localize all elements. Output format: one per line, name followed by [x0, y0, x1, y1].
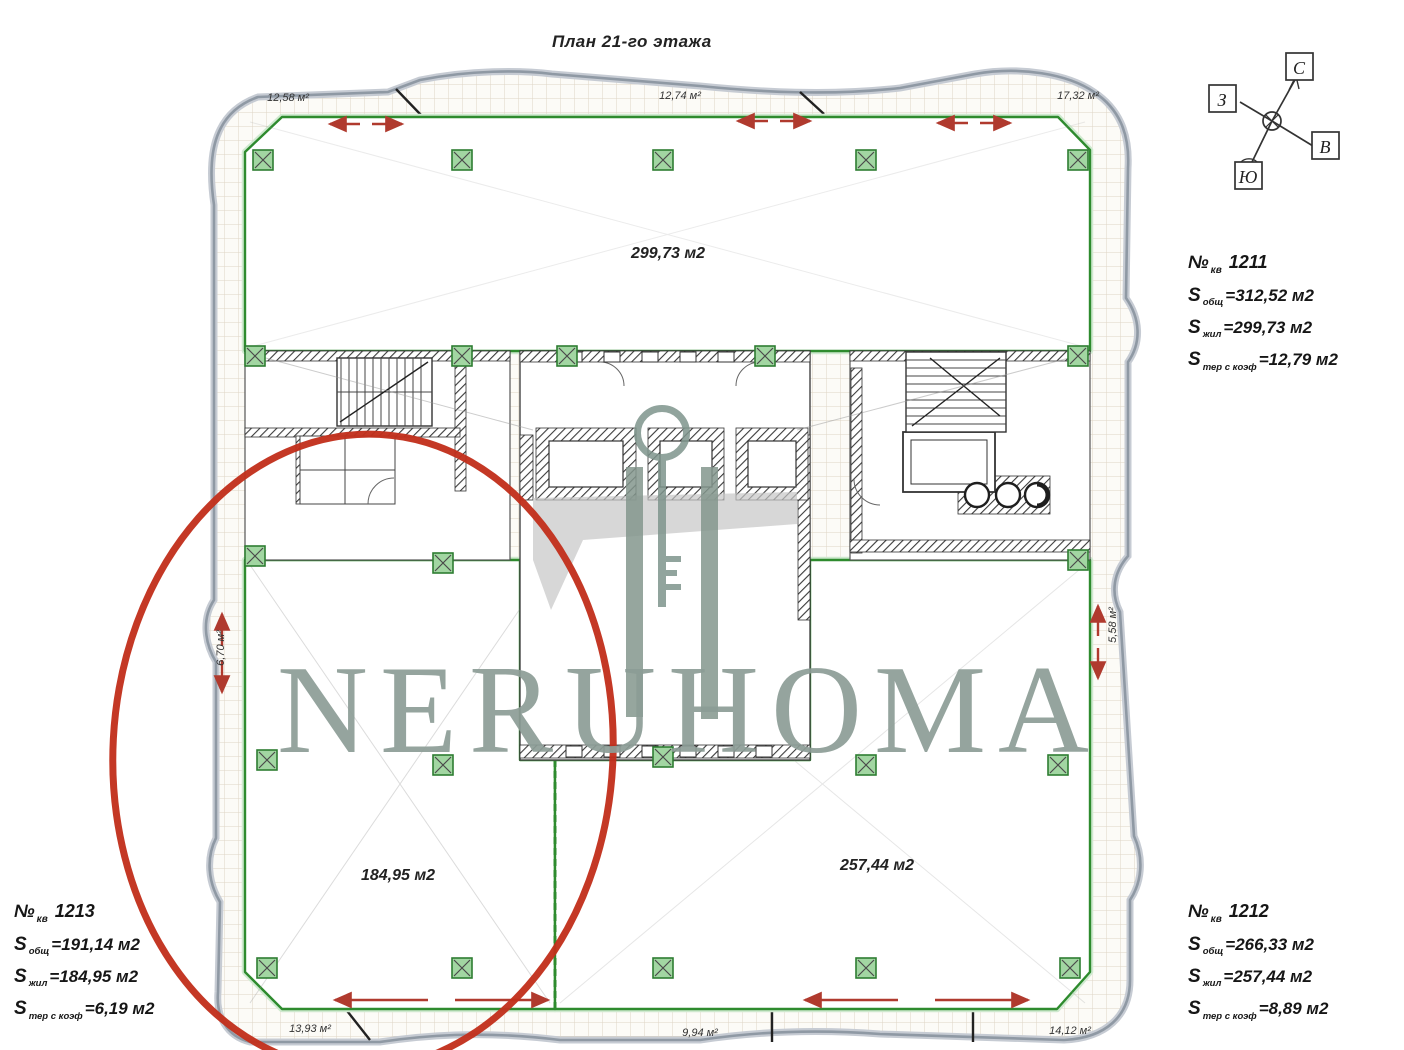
room-area-label-bottom-right: 257,44 м2	[839, 857, 914, 874]
room-area-label-top: 299,73 м2	[630, 245, 705, 262]
watermark-text: NERUHOMA	[277, 641, 1089, 780]
right-stairwell	[906, 352, 1006, 432]
balcony-area-label: 5,58 м²	[1107, 607, 1119, 643]
apartment-area-terrace: Sтер с коэф=8,89 м2	[1188, 996, 1403, 1028]
apartment-area-total: Sобщ=191,14 м2	[14, 932, 229, 964]
apartment-number: №кв 1213	[14, 899, 229, 932]
apartment-number: №кв 1211	[1188, 250, 1403, 283]
apartment-info-1212: №кв 1212 Sобщ=266,33 м2 Sжил=257,44 м2 S…	[1188, 899, 1403, 1029]
apartment-area-total: Sобщ=266,33 м2	[1188, 932, 1403, 964]
apartment-area-terrace: Sтер с коэф=12,79 м2	[1188, 347, 1403, 379]
balcony-area-label: 12,74 м²	[659, 90, 701, 102]
apartment-area-living: Sжил=184,95 м2	[14, 964, 229, 996]
room-area-label-bottom-left: 184,95 м2	[361, 867, 435, 884]
balcony-area-label: 6,70 м²	[215, 630, 227, 666]
apartment-number: №кв 1212	[1188, 899, 1403, 932]
compass-rose: С З В Ю	[1209, 53, 1339, 189]
compass-west-label: З	[1218, 90, 1227, 110]
balcony-area-label: 12,58 м²	[267, 92, 309, 104]
floor-plan-drawing: 299,73 м2 184,95 м2 257,44 м2 12,58 м² 1…	[0, 0, 1404, 1050]
compass-south-label: Ю	[1238, 167, 1258, 187]
balcony-area-label: 14,12 м²	[1049, 1025, 1091, 1037]
compass-north-label: С	[1293, 58, 1306, 78]
elevator-shafts	[549, 441, 796, 487]
apartment-area-total: Sобщ=312,52 м2	[1188, 283, 1403, 315]
apartment-area-terrace: Sтер с коэф=6,19 м2	[14, 996, 229, 1028]
balcony-area-label: 13,93 м²	[289, 1023, 331, 1035]
apartment-info-1211: №кв 1211 Sобщ=312,52 м2 Sжил=299,73 м2 S…	[1188, 250, 1403, 380]
apartment-info-1213: №кв 1213 Sобщ=191,14 м2 Sжил=184,95 м2 S…	[14, 899, 229, 1029]
garbage-chute	[965, 483, 1049, 507]
apartment-area-living: Sжил=299,73 м2	[1188, 315, 1403, 347]
left-stairwell	[337, 358, 432, 426]
floor-plan-page: План 21-го этажа	[0, 0, 1404, 1050]
compass-east-label: В	[1320, 137, 1331, 157]
apartment-area-living: Sжил=257,44 м2	[1188, 964, 1403, 996]
balcony-area-label: 17,32 м²	[1057, 90, 1099, 102]
balcony-area-label: 9,94 м²	[682, 1027, 718, 1039]
